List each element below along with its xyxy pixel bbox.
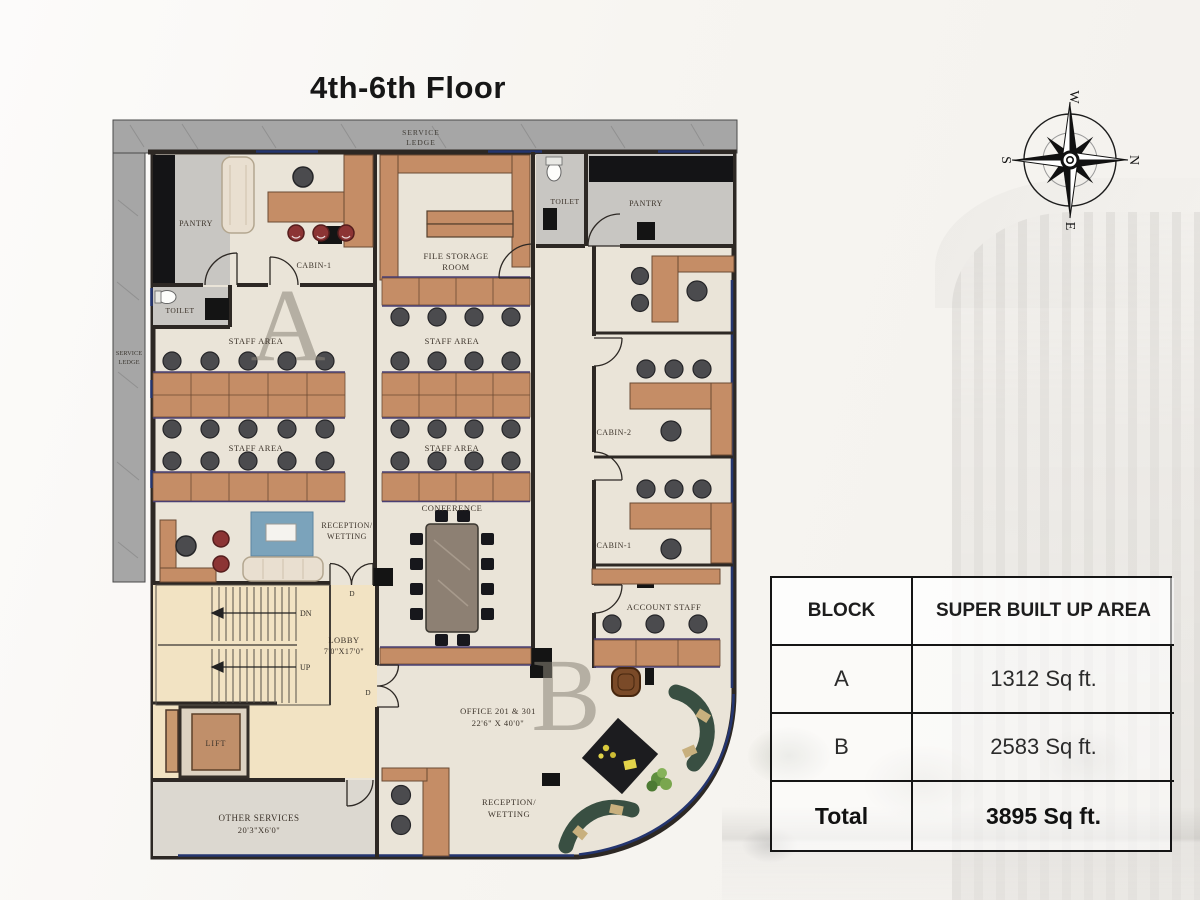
other-services-label-1: OTHER SERVICES: [218, 813, 299, 823]
cabin-a-furniture: [222, 155, 373, 247]
stairs-dn-label: DN: [300, 609, 312, 618]
lobby-label-1: LOBBY: [328, 635, 359, 645]
page-title: 4th-6th Floor: [310, 70, 750, 106]
red-stools: [288, 225, 354, 241]
stairs-up-label: UP: [300, 663, 311, 672]
compass-south-label: S: [1000, 156, 1013, 164]
account-staff-label: ACCOUNT STAFF: [627, 602, 701, 612]
cabin2-label: CABIN-2: [596, 428, 631, 437]
service-ledge-top-label-1: SERVICE: [402, 128, 440, 137]
staff-area-a2-label: STAFF AREA: [229, 443, 284, 453]
toilet-r-label: TOILET: [550, 197, 579, 206]
pantry-a-label: PANTRY: [179, 219, 213, 228]
service-ledge-top-label-2: LEDGE: [406, 138, 436, 147]
staff-area-m1-label: STAFF AREA: [425, 336, 480, 346]
cabin1-r-label: CABIN-1: [596, 541, 631, 550]
file-storage-label-1: FILE STORAGE: [423, 251, 488, 261]
compass-east-label: E: [1062, 222, 1077, 231]
toilet-a-label: TOILET: [165, 306, 194, 315]
compass-north-label: N: [1126, 155, 1140, 165]
area-table-row-total-area: 3895 Sq ft.: [913, 782, 1174, 850]
office-label-1: OFFICE 201 & 301: [460, 706, 536, 716]
compass-star: [1012, 102, 1128, 218]
staff-area-a1-label: STAFF AREA: [229, 336, 284, 346]
lift-label: LIFT: [206, 739, 227, 748]
compass-west-label: W: [1066, 90, 1081, 104]
pantry-r-label: PANTRY: [629, 199, 663, 208]
area-table-row-b-area: 2583 Sq ft.: [913, 714, 1174, 782]
reception-a-label-2: WETTING: [327, 532, 367, 541]
area-table-row-b-block: B: [772, 714, 913, 782]
lobby-label-2: 7'0"X17'0": [324, 647, 364, 656]
floor-plan: SERVICE LEDGE SERVICE LEDGE: [110, 118, 740, 868]
conference-label: CONFERENCE: [422, 503, 483, 513]
compass-rose: W N E S: [1000, 85, 1140, 235]
account-staff-furniture: [592, 569, 720, 667]
office-label-2: 22'6" X 40'0": [472, 718, 524, 728]
reception-a-label-1: RECEPTION/: [321, 521, 373, 530]
area-table-header-area: SUPER BUILT UP AREA: [913, 578, 1174, 646]
service-ledge-left-label-1: SERVICE: [116, 350, 143, 357]
other-services-label-2: 20'3"X6'0": [238, 825, 280, 835]
block-a-watermark: A: [250, 268, 325, 383]
door-label-1: D: [349, 590, 354, 598]
area-table-header-block: BLOCK: [772, 578, 913, 646]
door-label-2: D: [365, 689, 370, 697]
area-table-row-a-block: A: [772, 646, 913, 714]
service-ledge-left-label-2: LEDGE: [118, 359, 139, 366]
area-table-row-a-area: 1312 Sq ft.: [913, 646, 1174, 714]
area-table: BLOCK SUPER BUILT UP AREA A 1312 Sq ft. …: [770, 576, 1172, 852]
staff-area-m2-label: STAFF AREA: [425, 443, 480, 453]
reception-b-label-2: WETTING: [488, 809, 530, 819]
reception-b-label-1: RECEPTION/: [482, 797, 536, 807]
block-b-watermark: B: [531, 638, 600, 753]
area-table-row-total-block: Total: [772, 782, 913, 850]
file-storage-label-2: ROOM: [442, 262, 470, 272]
lift: LIFT: [166, 707, 248, 777]
cabin1-a-label: CABIN-1: [296, 261, 331, 270]
